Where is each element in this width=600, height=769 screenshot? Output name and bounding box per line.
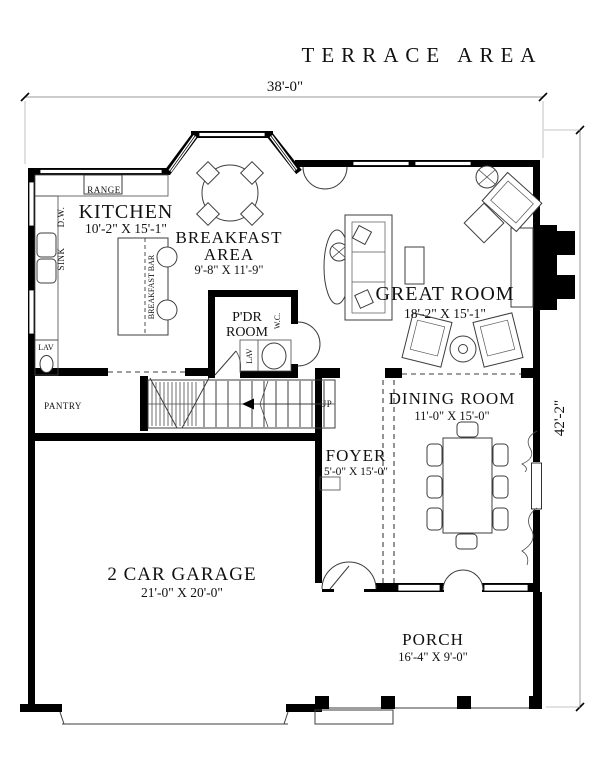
dining-room-label: DINING ROOM [389, 389, 516, 408]
staircase [148, 380, 335, 428]
foyer-label: FOYER [326, 446, 387, 465]
overall-height-dimension: 42'-2" [552, 400, 568, 436]
terrace-door-arc [303, 167, 347, 189]
garage-dims: 21'-0" X 20'-0" [141, 585, 223, 600]
pantry-label: PANTRY [44, 401, 82, 411]
coffee-table [405, 247, 424, 284]
great-room-furniture [324, 166, 542, 367]
great-room-label: GREAT ROOM [375, 283, 514, 305]
pdr-room-label-1: P'DR [232, 310, 262, 325]
sink-label: SINK [56, 247, 66, 270]
lav-left-label: LAV [38, 343, 54, 352]
page-title: TERRACE AREA [302, 43, 543, 67]
floor-plan-page: 38'-0" 42'-2" [0, 0, 600, 769]
porch-column [457, 696, 471, 709]
kitchen-label: KITCHEN [79, 201, 174, 223]
dining-door-arc [443, 570, 483, 590]
wc-label: W.C. [273, 313, 282, 329]
dining-table [443, 438, 492, 533]
breakfast-label-2: AREA [204, 245, 254, 264]
dining-furniture [427, 422, 537, 565]
up-label: UP [320, 399, 333, 409]
porch-column [315, 696, 329, 709]
great-room-dims: 18'-2" X 15'-1" [404, 306, 486, 321]
entry-steps [315, 710, 393, 724]
powder-door-arc [298, 322, 320, 366]
pdr-room-label-2: ROOM [226, 325, 269, 340]
foyer-dims: 5'-0" X 15'-0" [324, 466, 388, 478]
floor-plan-drawing: 38'-0" 42'-2" [0, 0, 600, 769]
garage-label: 2 CAR GARAGE [107, 564, 256, 585]
bar-stool [157, 247, 177, 267]
foyer-closet [320, 477, 340, 490]
porch-dims: 16'-4" X 9'-0" [398, 650, 468, 664]
dining-room-dims: 11'-0" X 15'-0" [414, 409, 489, 423]
porch-column [529, 696, 542, 709]
bar-stool [157, 300, 177, 320]
lav-pdr-label: LAV [245, 348, 254, 364]
breakfast-furniture [197, 162, 264, 226]
porch-label: PORCH [402, 630, 464, 649]
breakfast-dims: 9'-8" X 11'-9" [194, 263, 263, 277]
breakfast-bar-label: BREAKFAST BAR [147, 254, 156, 319]
overall-width-dimension: 38'-0" [267, 79, 303, 95]
range-label: RANGE [87, 185, 121, 195]
toilet [262, 343, 286, 369]
kitchen-dims: 10'-2" X 15'-1" [85, 221, 167, 236]
sink-basin [37, 233, 56, 257]
dw-label: D.W. [56, 207, 66, 228]
fireplace [511, 225, 575, 310]
up-arrow [242, 399, 254, 410]
lav-sink [40, 356, 53, 373]
sink-basin [37, 259, 56, 283]
porch-column [381, 696, 395, 709]
